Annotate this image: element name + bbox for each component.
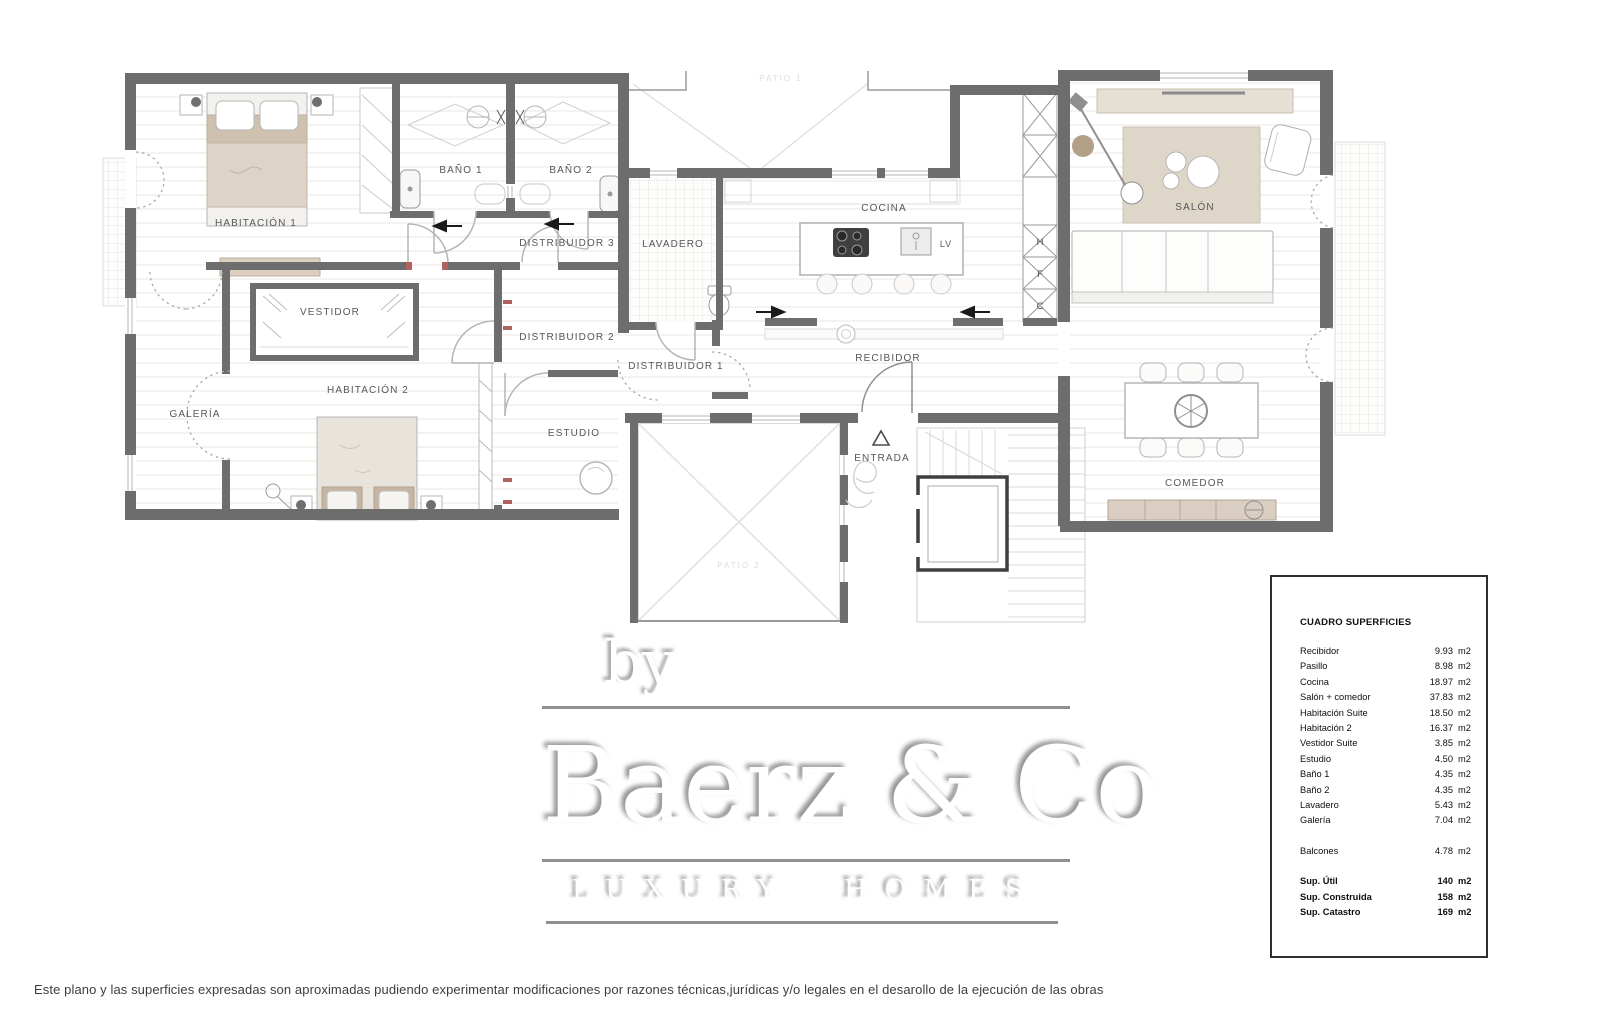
closet-letter-c: C xyxy=(1037,301,1044,312)
glass-partition xyxy=(479,363,492,511)
surface-total-catastro: Sup. Catastro169m2 xyxy=(1300,905,1474,920)
page: PATIO 1 PATIO 2 xyxy=(0,0,1599,1029)
closet-column xyxy=(1023,93,1057,322)
room-label-lavadero: LAVADERO xyxy=(642,239,704,250)
estudio-chair xyxy=(580,462,612,494)
room-label-vestidor: VESTIDOR xyxy=(300,307,360,318)
room-label-comedor: COMEDOR xyxy=(1165,478,1225,489)
closet-habitacion1 xyxy=(360,88,396,213)
room-label-estudio: ESTUDIO xyxy=(548,428,600,439)
room-label-galeria: GALERÍA xyxy=(169,407,220,420)
room-label-bano2: BAÑO 2 xyxy=(549,163,592,176)
room-label-distribuidor3: DISTRIBUIDOR 3 xyxy=(519,238,614,249)
room-label-cocina: COCINA xyxy=(861,203,907,214)
disclaimer-text: Este plano y las superficies expresadas … xyxy=(34,982,1574,997)
surface-total-construida: Sup. Construida158m2 xyxy=(1300,890,1474,905)
surface-row: Habitación 216.37m2 xyxy=(1300,721,1474,736)
wardrobe-vestidor xyxy=(253,286,416,358)
surface-row: Cocina18.97m2 xyxy=(1300,675,1474,690)
surfaces-table-title: CUADRO SUPERFICIES xyxy=(1300,617,1474,628)
room-label-habitacion1: HABITACIÓN 1 xyxy=(215,216,297,229)
elevator xyxy=(915,477,1007,570)
patio2-label: PATIO 2 xyxy=(717,561,761,570)
closet-letter-h: H xyxy=(1037,237,1044,248)
patio1-label: PATIO 1 xyxy=(759,74,803,83)
surface-row: Salón + comedor37.83m2 xyxy=(1300,690,1474,705)
room-label-distribuidor1: DISTRIBUIDOR 1 xyxy=(628,361,723,372)
closet-letter-f: F xyxy=(1037,269,1043,280)
surface-row: Lavadero5.43m2 xyxy=(1300,798,1474,813)
surface-row: Baño 24.35m2 xyxy=(1300,783,1474,798)
entrance xyxy=(846,431,889,508)
surfaces-table: CUADRO SUPERFICIES Recibidor9.93m2 Pasil… xyxy=(1270,575,1488,958)
surface-row-balcones: Balcones4.78m2 xyxy=(1300,844,1474,859)
room-label-entrada: ENTRADA xyxy=(854,453,909,464)
patio-top: PATIO 1 xyxy=(629,71,950,168)
room-label-bano1: BAÑO 1 xyxy=(439,163,482,176)
lv-label: LV xyxy=(940,239,952,249)
patio-courtyard: PATIO 2 xyxy=(630,423,848,621)
surface-row: Recibidor9.93m2 xyxy=(1300,644,1474,659)
balcony-right xyxy=(1335,142,1385,435)
surface-total-util: Sup. Útil140m2 xyxy=(1300,874,1474,889)
surface-row: Estudio4.50m2 xyxy=(1300,752,1474,767)
surface-row: Vestidor Suite3.85m2 xyxy=(1300,736,1474,751)
surface-row: Habitación Suite18.50m2 xyxy=(1300,706,1474,721)
room-label-recibidor: RECIBIDOR xyxy=(855,353,920,364)
room-label-habitacion2: HABITACIÓN 2 xyxy=(327,383,409,396)
surface-row: Baño 14.35m2 xyxy=(1300,767,1474,782)
room-label-salon: SALÓN xyxy=(1175,200,1214,213)
room-label-distribuidor2: DISTRIBUIDOR 2 xyxy=(519,332,614,343)
surface-row: Pasillo8.98m2 xyxy=(1300,659,1474,674)
surface-row: Galería7.04m2 xyxy=(1300,813,1474,828)
